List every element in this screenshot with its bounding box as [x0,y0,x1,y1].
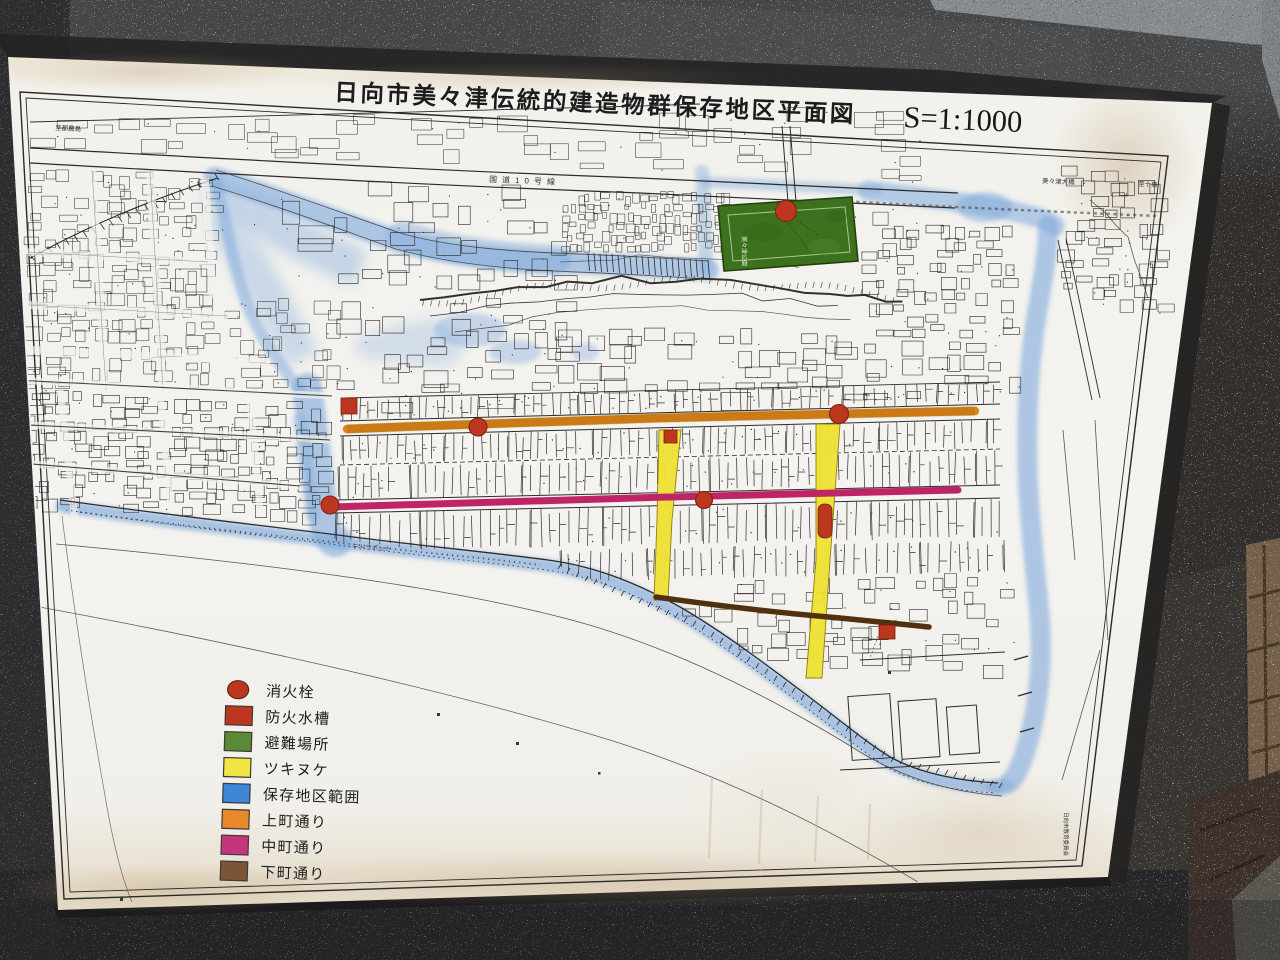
svg-text:保存地区範囲: 保存地区範囲 [263,786,361,807]
svg-text:ツキヌケ: ツキヌケ [263,761,329,780]
svg-text:日向市教育委員会: 日向市教育委員会 [1062,812,1070,857]
svg-text:上町通り: 上町通り [262,813,328,832]
svg-text:美々津公園: 美々津公園 [740,236,748,266]
svg-text:消火栓: 消火栓 [266,683,315,702]
svg-text:防火水槽: 防火水槽 [265,709,331,728]
svg-text:避難場所: 避難場所 [264,735,330,754]
svg-text:S=1:1000: S=1:1000 [903,100,1023,139]
svg-text:下町通り: 下町通り [260,864,326,883]
svg-text:中町通り: 中町通り [261,838,327,857]
